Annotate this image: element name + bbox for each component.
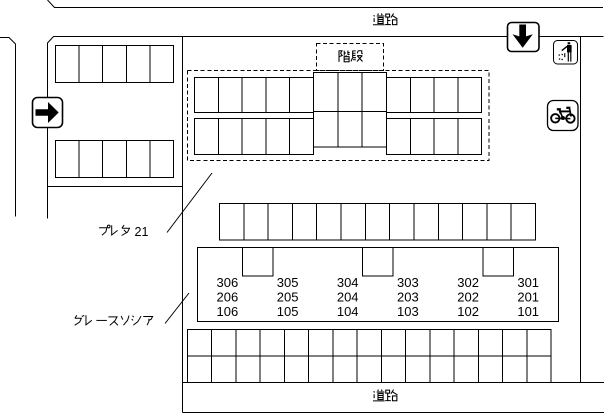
svg-text:102: 102: [457, 304, 479, 319]
svg-text:101: 101: [517, 304, 539, 319]
svg-text:303: 303: [397, 275, 419, 290]
svg-text:302: 302: [457, 275, 479, 290]
svg-text:201: 201: [517, 290, 539, 305]
svg-text:106: 106: [217, 304, 239, 319]
svg-text:202: 202: [457, 290, 479, 305]
svg-text:304: 304: [337, 275, 359, 290]
svg-text:104: 104: [337, 304, 359, 319]
svg-text:206: 206: [217, 290, 239, 305]
svg-text:301: 301: [517, 275, 539, 290]
svg-text:306: 306: [217, 275, 239, 290]
svg-text:21: 21: [135, 225, 149, 239]
svg-text:205: 205: [277, 290, 299, 305]
svg-text:103: 103: [397, 304, 419, 319]
svg-text:105: 105: [277, 304, 299, 319]
svg-text:204: 204: [337, 290, 359, 305]
svg-text:203: 203: [397, 290, 419, 305]
svg-text:305: 305: [277, 275, 299, 290]
